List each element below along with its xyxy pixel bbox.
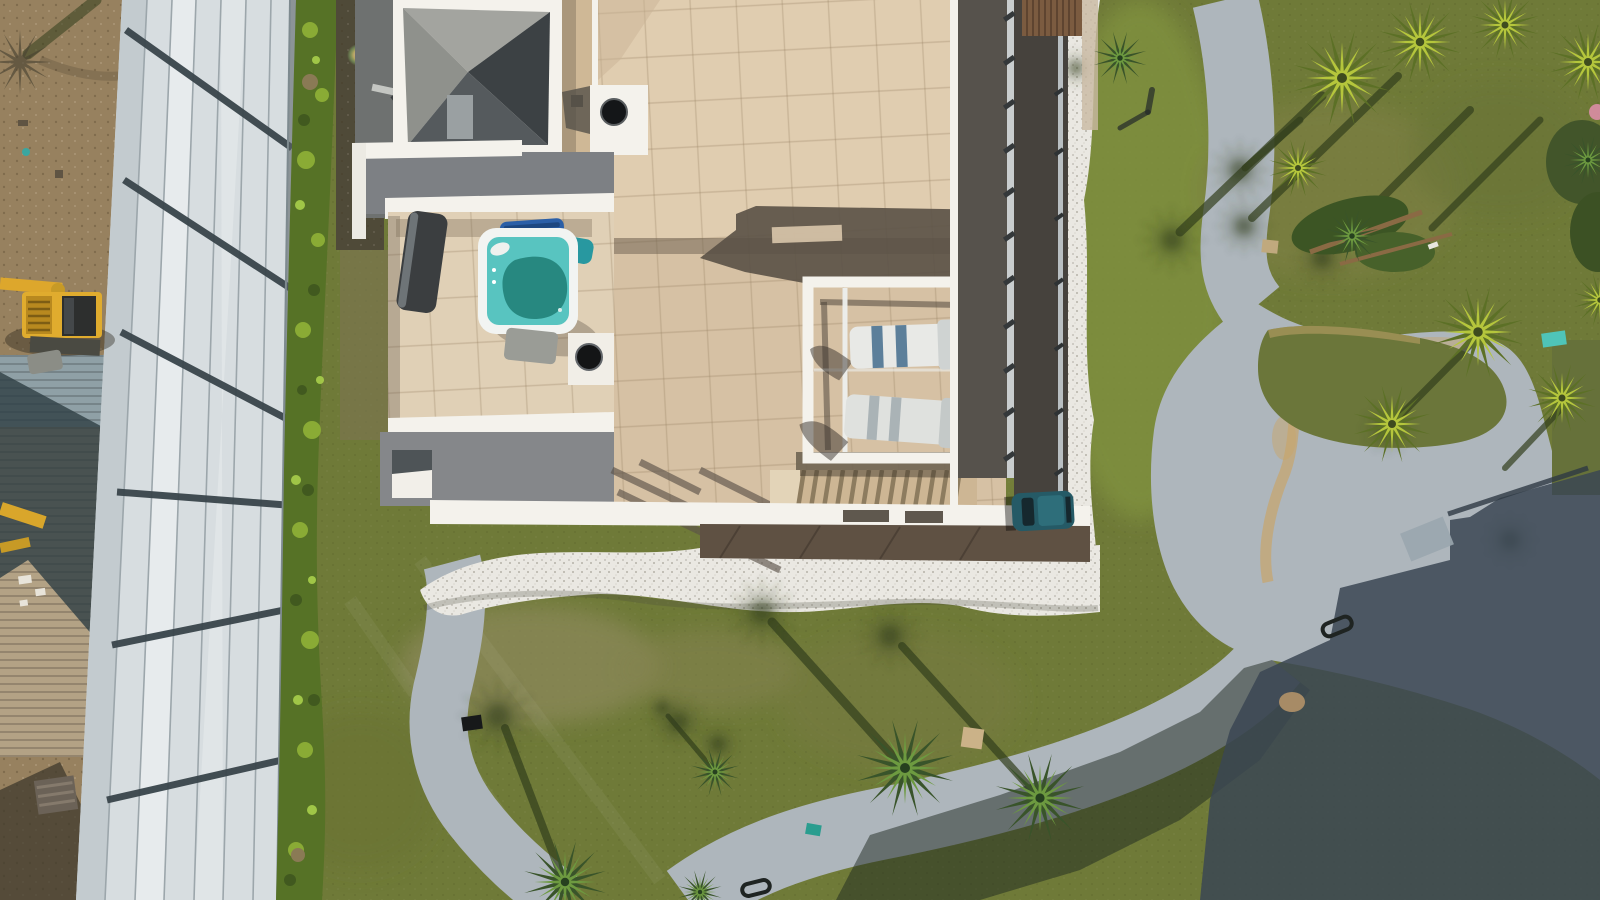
parked-car: [1004, 490, 1075, 532]
utility-box: [392, 450, 432, 498]
vent-chimney: [590, 85, 648, 155]
stepping-stone: [961, 727, 985, 750]
roof-chimney: [447, 95, 473, 139]
stepping-stone: [1261, 239, 1278, 254]
terrace-lamp: [568, 333, 622, 385]
villa: [352, 0, 1098, 570]
aerial-photo-canvas: [0, 0, 1600, 900]
hot-tub: [478, 228, 578, 334]
stone: [1279, 692, 1305, 712]
staircase: [770, 470, 977, 508]
pyramid-roof: [393, 0, 560, 158]
aerial-photo: [0, 0, 1600, 900]
roof-terrace: [598, 0, 955, 238]
pallet: [34, 775, 78, 814]
ground-fixture: [461, 715, 483, 732]
bench-cushion: [503, 327, 558, 364]
